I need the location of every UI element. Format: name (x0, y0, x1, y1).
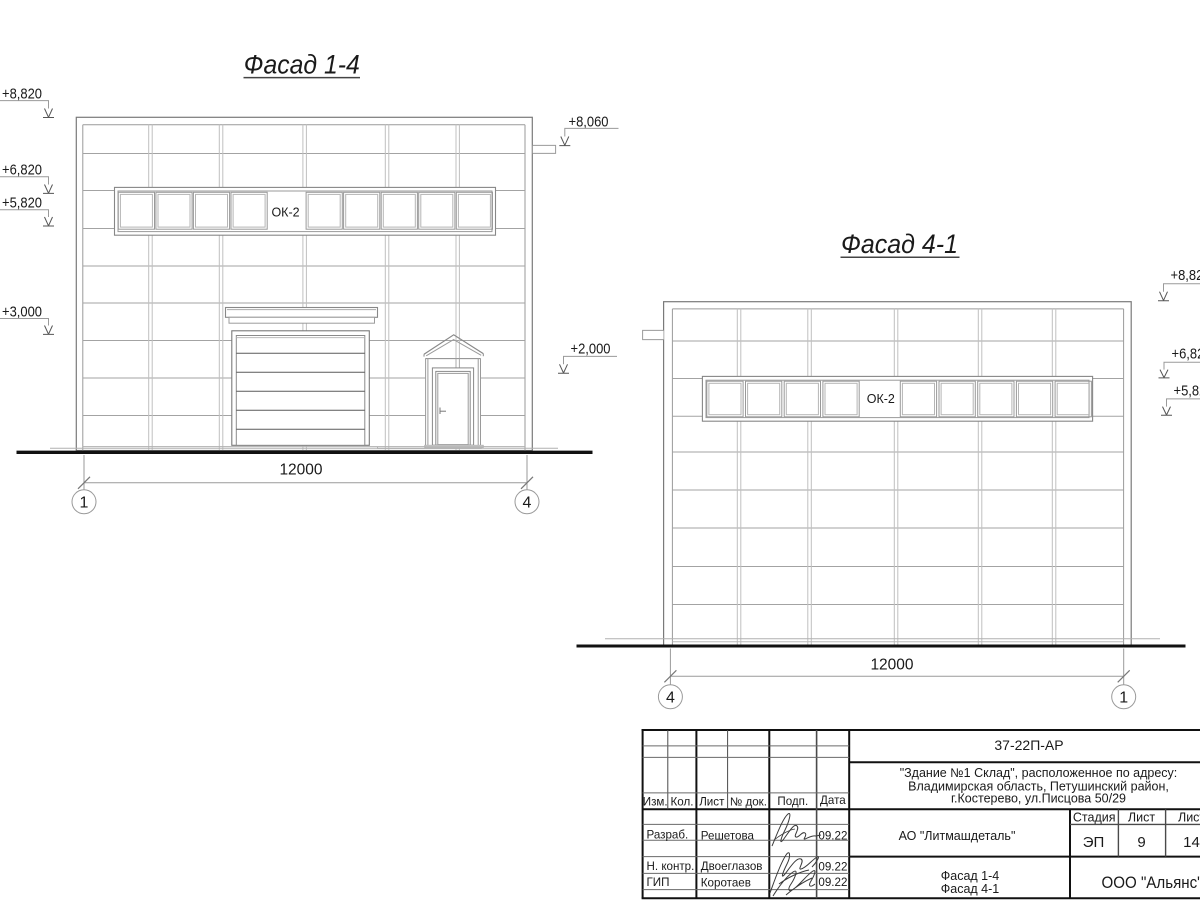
svg-text:4: 4 (523, 494, 532, 511)
svg-text:09.22: 09.22 (818, 829, 847, 842)
svg-text:09.22: 09.22 (818, 861, 847, 874)
svg-text:Н. контр.: Н. контр. (647, 860, 695, 873)
svg-text:Подп.: Подп. (777, 795, 808, 808)
svg-text:Дата: Дата (820, 794, 846, 807)
svg-text:+8,820: +8,820 (1171, 267, 1200, 284)
svg-text:1: 1 (1119, 689, 1128, 706)
svg-text:+5,820: +5,820 (1174, 383, 1200, 400)
svg-text:+2,000: +2,000 (571, 341, 611, 358)
svg-text:ОК-2: ОК-2 (867, 392, 895, 406)
svg-text:Коротаев: Коротаев (701, 877, 751, 890)
svg-text:1: 1 (80, 494, 89, 511)
svg-text:Стадия: Стадия (1073, 810, 1116, 824)
svg-text:12000: 12000 (279, 462, 322, 479)
svg-text:Решетова: Решетова (701, 829, 755, 842)
svg-text:ЭП: ЭП (1083, 834, 1105, 851)
svg-text:+8,820: +8,820 (2, 86, 42, 103)
svg-text:Фасад 4-1: Фасад 4-1 (941, 882, 1000, 896)
svg-text:Кол.: Кол. (671, 796, 694, 809)
svg-text:+6,820: +6,820 (1172, 346, 1200, 363)
svg-text:Фасад 1-4: Фасад 1-4 (244, 50, 360, 80)
svg-text:12000: 12000 (870, 657, 913, 674)
svg-text:ОК-2: ОК-2 (271, 206, 299, 220)
svg-text:Лист: Лист (1128, 810, 1155, 824)
svg-text:Изм.: Изм. (643, 796, 668, 809)
svg-text:09.22: 09.22 (818, 876, 847, 889)
svg-text:"Здание №1 Склад", расположенн: "Здание №1 Склад", расположенное по адре… (900, 766, 1178, 780)
svg-text:+3,000: +3,000 (2, 303, 42, 320)
svg-text:№ док.: № док. (730, 796, 767, 809)
svg-text:Фасад 4-1: Фасад 4-1 (841, 229, 958, 259)
svg-text:+6,820: +6,820 (2, 162, 42, 179)
svg-text:ООО "Альянс": ООО "Альянс" (1102, 874, 1200, 892)
svg-text:9: 9 (1137, 834, 1145, 851)
svg-text:14: 14 (1183, 834, 1200, 851)
svg-text:Лист: Лист (699, 796, 725, 809)
svg-text:+5,820: +5,820 (2, 195, 42, 212)
svg-text:г.Костерево, ул.Писцова 50/29: г.Костерево, ул.Писцова 50/29 (951, 792, 1126, 806)
svg-text:Разраб.: Разраб. (647, 829, 689, 842)
svg-text:Двоеглазов: Двоеглазов (701, 860, 763, 873)
svg-text:Листов: Листов (1178, 810, 1200, 824)
svg-text:ГИП: ГИП (647, 876, 670, 889)
svg-text:37-22П-АР: 37-22П-АР (994, 737, 1063, 753)
svg-text:АО "Литмашдеталь": АО "Литмашдеталь" (899, 829, 1016, 843)
svg-text:4: 4 (666, 689, 675, 706)
